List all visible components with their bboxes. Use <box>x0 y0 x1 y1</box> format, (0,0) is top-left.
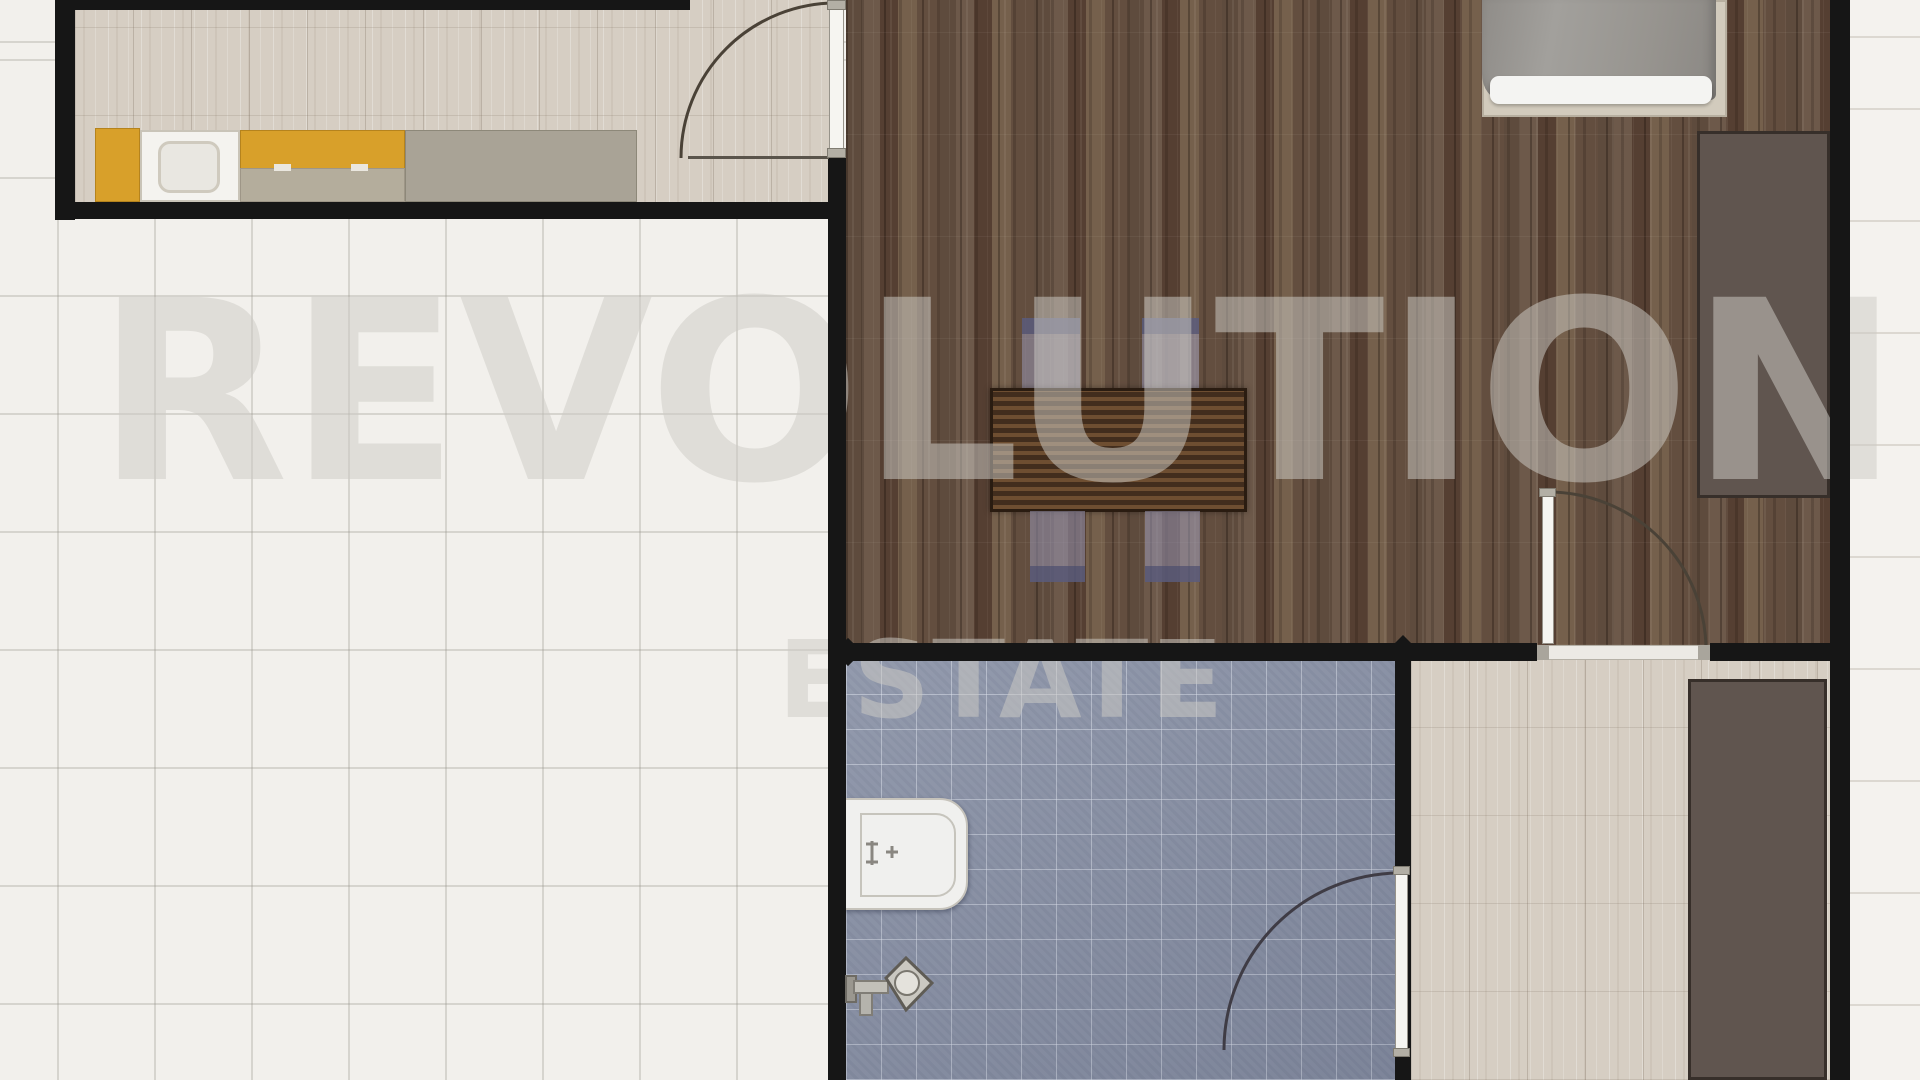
wall-spine-vertical <box>828 158 846 1080</box>
floorplan-canvas: REVOLUTION ESTATE <box>0 0 1920 1080</box>
living-door-threshold-cap <box>1698 645 1710 660</box>
dining-chair-3 <box>1030 511 1085 582</box>
wall-kitchen-top <box>55 0 690 10</box>
kitchen-counter-lower <box>240 168 405 202</box>
kitchen-door-leaf <box>829 0 844 158</box>
kitchen-cabinet-handle <box>351 164 368 171</box>
kitchen-cabinet-left <box>95 128 140 202</box>
wall-living-bottom-left <box>846 643 1537 661</box>
bathroom-door-leaf <box>1395 873 1408 1050</box>
kitchen-door-hinge <box>827 0 846 10</box>
kitchen-cabinet-handle <box>274 164 291 171</box>
toilet-seat <box>860 813 956 897</box>
dining-chair-4 <box>1145 511 1200 582</box>
living-door-threshold-cap <box>1537 645 1549 660</box>
dining-chair-1 <box>1022 318 1080 389</box>
kitchen-cabinet-mid <box>240 130 405 170</box>
wardrobe-bedroom <box>1697 131 1830 498</box>
chair-backrest <box>1145 566 1200 582</box>
bathroom-door-hinge <box>1393 1048 1410 1057</box>
wardrobe-hallway <box>1688 679 1827 1080</box>
living-door-leaf <box>1542 492 1554 644</box>
bed-pillow-sheet <box>1490 76 1712 104</box>
living-door-threshold <box>1537 645 1710 660</box>
dining-table <box>990 388 1247 512</box>
kitchen-door-hinge <box>827 148 846 158</box>
wall-living-bottom-right <box>1710 643 1850 661</box>
wall-kitchen-left <box>55 0 75 220</box>
kitchen-counter-gray <box>405 130 637 202</box>
bathroom-door-hinge <box>1393 866 1410 875</box>
chair-backrest <box>1022 318 1080 334</box>
dining-chair-2 <box>1142 318 1199 389</box>
wall-kitchen-bottom <box>55 202 846 219</box>
wall-exterior-right <box>1830 0 1850 1080</box>
chair-backrest <box>1030 566 1085 582</box>
living-door-hinge <box>1539 488 1556 497</box>
chair-backrest <box>1142 318 1199 334</box>
balcony-strip-right <box>1850 0 1920 1080</box>
kitchen-door-open-line <box>688 156 829 159</box>
kitchen-sink-basin <box>158 141 220 193</box>
toilet <box>843 798 968 910</box>
